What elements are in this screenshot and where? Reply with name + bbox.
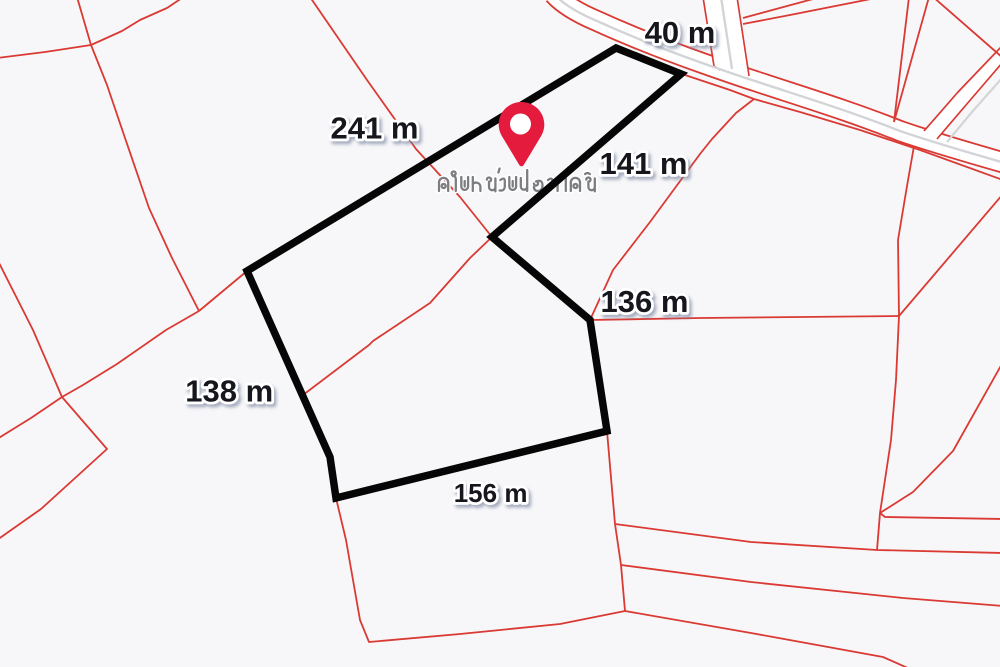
svg-text:40 m: 40 m <box>645 15 716 50</box>
svg-text:136 m: 136 m <box>601 284 689 319</box>
svg-text:141 m: 141 m <box>600 146 688 181</box>
svg-text:241 m: 241 m <box>331 111 419 146</box>
svg-text:138 m: 138 m <box>185 374 273 409</box>
svg-text:156 m: 156 m <box>454 478 528 508</box>
